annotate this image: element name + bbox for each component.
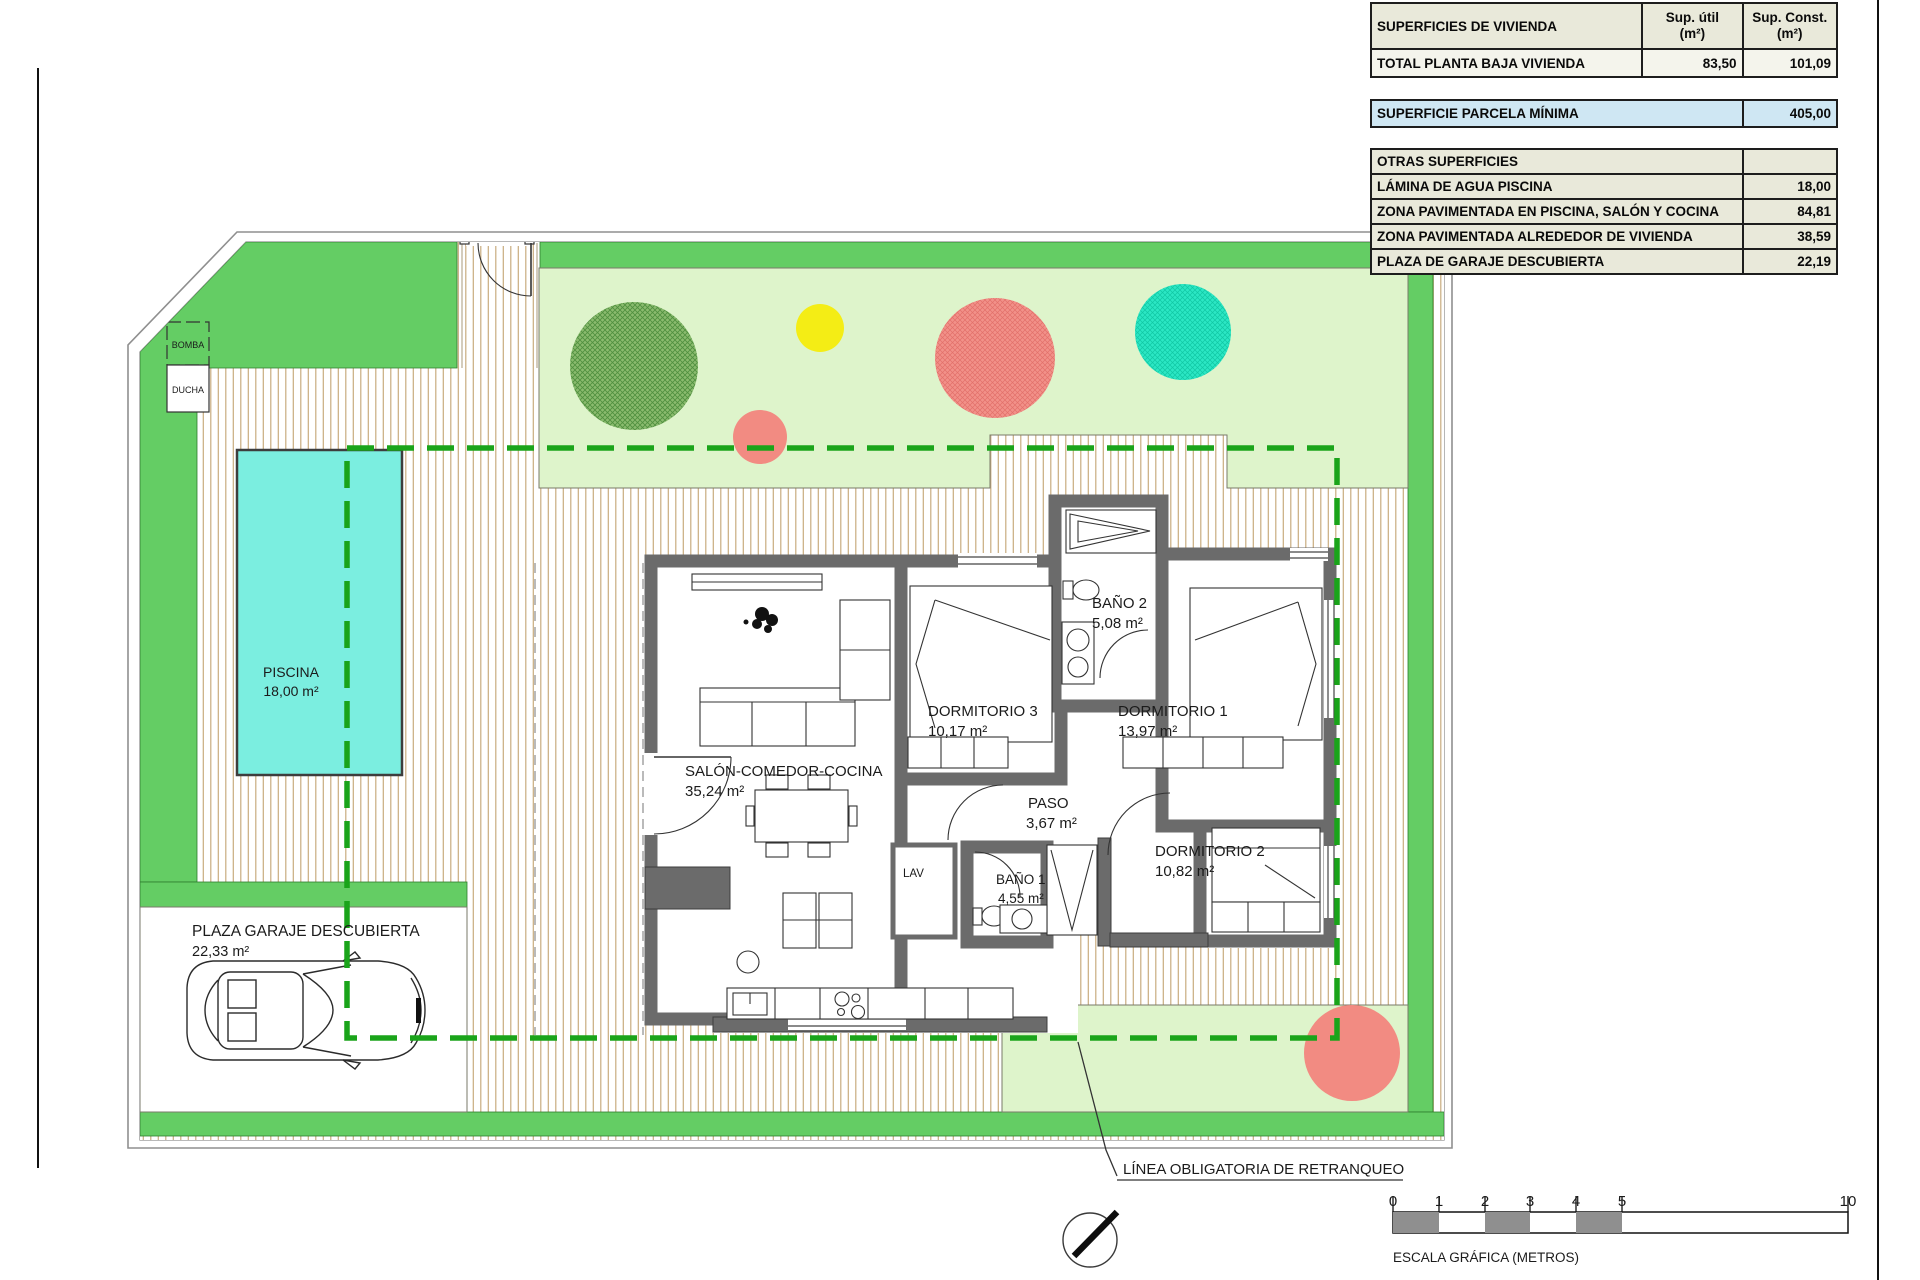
otras-value: 84,81 <box>1743 199 1837 224</box>
dorm2-area: 10,82 m² <box>1155 863 1214 880</box>
wardrobe-dorm2 <box>1212 902 1320 932</box>
parcela-table: SUPERFICIE PARCELA MÍNIMA 405,00 <box>1370 99 1838 128</box>
wardrobe-top <box>1066 510 1156 553</box>
kitchen-counter <box>727 988 1013 1019</box>
piscina-area: 18,00 m² <box>263 683 319 699</box>
dorm2-label: DORMITORIO 2 <box>1155 843 1265 860</box>
header-cell-title: SUPERFICIES DE VIVIENDA <box>1371 3 1642 49</box>
viviendas-table: SUPERFICIES DE VIVIENDA Sup. útil (m²) S… <box>1370 2 1838 78</box>
scale-ticks: 0 1 2 3 4 5 10 <box>1389 1193 1857 1210</box>
scale-tick: 1 <box>1435 1193 1443 1210</box>
piscina-label: PISCINA <box>263 664 320 680</box>
banio2-label: BAÑO 2 <box>1092 595 1147 612</box>
banio1-label: BAÑO 1 <box>996 872 1046 887</box>
table-gap <box>1370 78 1840 99</box>
table-row: TOTAL PLANTA BAJA VIVIENDA 83,50 101,09 <box>1371 49 1837 77</box>
scale-tick: 0 <box>1389 1193 1397 1210</box>
header-cell-const: Sup. Const. (m²) <box>1743 3 1837 49</box>
lawn-right-band <box>1408 268 1433 1112</box>
sink-banio2 <box>1068 657 1088 677</box>
lawn-garage-strip <box>140 882 467 907</box>
table-row: SUPERFICIE PARCELA MÍNIMA 405,00 <box>1371 100 1837 127</box>
scale-tick: 4 <box>1572 1193 1580 1210</box>
otras-value: 38,59 <box>1743 224 1837 249</box>
chair <box>766 843 788 857</box>
otras-header: OTRAS SUPERFICIES <box>1371 149 1743 174</box>
tree-coral-large <box>935 298 1055 418</box>
chair <box>746 806 754 826</box>
tree-teal <box>1135 284 1231 380</box>
sofa <box>700 688 855 746</box>
lawn-bottom-strip <box>140 1112 1444 1136</box>
lav-niche <box>893 845 955 937</box>
plaza-garaje-area: 22,33 m² <box>192 944 249 960</box>
otras-value: 22,19 <box>1743 249 1837 274</box>
total-util: 83,50 <box>1642 49 1742 77</box>
kitchen <box>727 988 1013 1019</box>
ducha-label: DUCHA <box>172 385 204 395</box>
car <box>187 952 425 1069</box>
stove-burner <box>838 1009 845 1016</box>
window-dorm1-top <box>1290 548 1328 561</box>
tree-green <box>570 302 698 430</box>
tree-yellow <box>796 304 844 352</box>
north-arrow-icon <box>1063 1212 1117 1267</box>
otras-superficies-table: OTRAS SUPERFICIES LÁMINA DE AGUA PISCINA… <box>1370 148 1838 275</box>
otras-label: LÁMINA DE AGUA PISCINA <box>1371 174 1743 199</box>
banio2-area: 5,08 m² <box>1092 615 1143 632</box>
parcela-value: 405,00 <box>1743 100 1837 127</box>
wardrobe-dorm3 <box>908 737 1008 768</box>
salon-area: 35,24 m² <box>685 783 744 800</box>
paso-label: PASO <box>1028 795 1069 812</box>
dorm1-area: 13,97 m² <box>1118 723 1177 740</box>
table-gap <box>1370 128 1840 148</box>
dorm3-area: 10,17 m² <box>928 723 987 740</box>
retranqueo-label: LÍNEA OBLIGATORIA DE RETRANQUEO <box>1123 1161 1404 1178</box>
total-const: 101,09 <box>1743 49 1837 77</box>
tree-coral-small <box>733 410 787 464</box>
window-dorm3-top <box>958 553 1037 568</box>
table-header-row: SUPERFICIES DE VIVIENDA Sup. útil (m²) S… <box>1371 3 1837 49</box>
pool <box>237 450 402 775</box>
scale-caption: ESCALA GRÁFICA (METROS) <box>1393 1250 1579 1265</box>
scale-tick: 3 <box>1526 1193 1534 1210</box>
sink-banio2 <box>1067 629 1089 651</box>
lawn-top-strip <box>540 242 1444 268</box>
summary-table: SUPERFICIES DE VIVIENDA Sup. útil (m²) S… <box>1370 2 1840 275</box>
chair <box>808 843 830 857</box>
bomba-label: BOMBA <box>172 340 205 350</box>
table-row: ZONA PAVIMENTADA EN PISCINA, SALÓN Y COC… <box>1371 199 1837 224</box>
parcela-label: SUPERFICIE PARCELA MÍNIMA <box>1371 100 1743 127</box>
header-cell-util: Sup. útil (m²) <box>1642 3 1742 49</box>
lav-label: LAV <box>903 868 924 880</box>
otras-label: PLAZA DE GARAJE DESCUBIERTA <box>1371 249 1743 274</box>
otras-header-empty <box>1743 149 1837 174</box>
sink-banio1 <box>1012 909 1032 929</box>
table-row: LÁMINA DE AGUA PISCINA 18,00 <box>1371 174 1837 199</box>
stove-burner <box>852 994 860 1002</box>
otras-value: 18,00 <box>1743 174 1837 199</box>
floor-plan-sheet: BOMBA DUCHA PISCINA 18,00 m² PLAZA GARAJ… <box>0 0 1920 1280</box>
closet-v <box>1047 845 1097 935</box>
scale-tick: 2 <box>1481 1193 1489 1210</box>
table-row: OTRAS SUPERFICIES <box>1371 149 1837 174</box>
otras-label: ZONA PAVIMENTADA ALREDEDOR DE VIVIENDA <box>1371 224 1743 249</box>
stove-burner <box>835 992 849 1006</box>
chair <box>849 806 857 826</box>
scale-tick: 5 <box>1618 1193 1626 1210</box>
toilet-banio2 <box>1063 581 1073 599</box>
car-grille <box>416 998 421 1023</box>
scale-bar: 0 1 2 3 4 5 10 ESCALA GRÁFICA (METROS) <box>1389 1193 1857 1265</box>
tree-coral-bottom <box>1304 1005 1400 1101</box>
scale-tick: 10 <box>1840 1193 1857 1210</box>
stove-burner <box>852 1006 865 1019</box>
otras-label: ZONA PAVIMENTADA EN PISCINA, SALÓN Y COC… <box>1371 199 1743 224</box>
toilet-banio1 <box>973 908 982 925</box>
table-row: ZONA PAVIMENTADA ALREDEDOR DE VIVIENDA 3… <box>1371 224 1837 249</box>
total-label: TOTAL PLANTA BAJA VIVIENDA <box>1371 49 1642 77</box>
table-row: PLAZA DE GARAJE DESCUBIERTA 22,19 <box>1371 249 1837 274</box>
dining-table <box>755 790 848 842</box>
dorm3-label: DORMITORIO 3 <box>928 703 1038 720</box>
dorm1-label: DORMITORIO 1 <box>1118 703 1228 720</box>
salon-label: SALÓN-COMEDOR-COCINA <box>685 763 883 780</box>
banio1-area: 4,55 m² <box>998 891 1044 906</box>
paso-area: 3,67 m² <box>1026 815 1077 832</box>
side-table <box>737 951 759 973</box>
plaza-garaje-label: PLAZA GARAJE DESCUBIERTA <box>192 923 420 940</box>
